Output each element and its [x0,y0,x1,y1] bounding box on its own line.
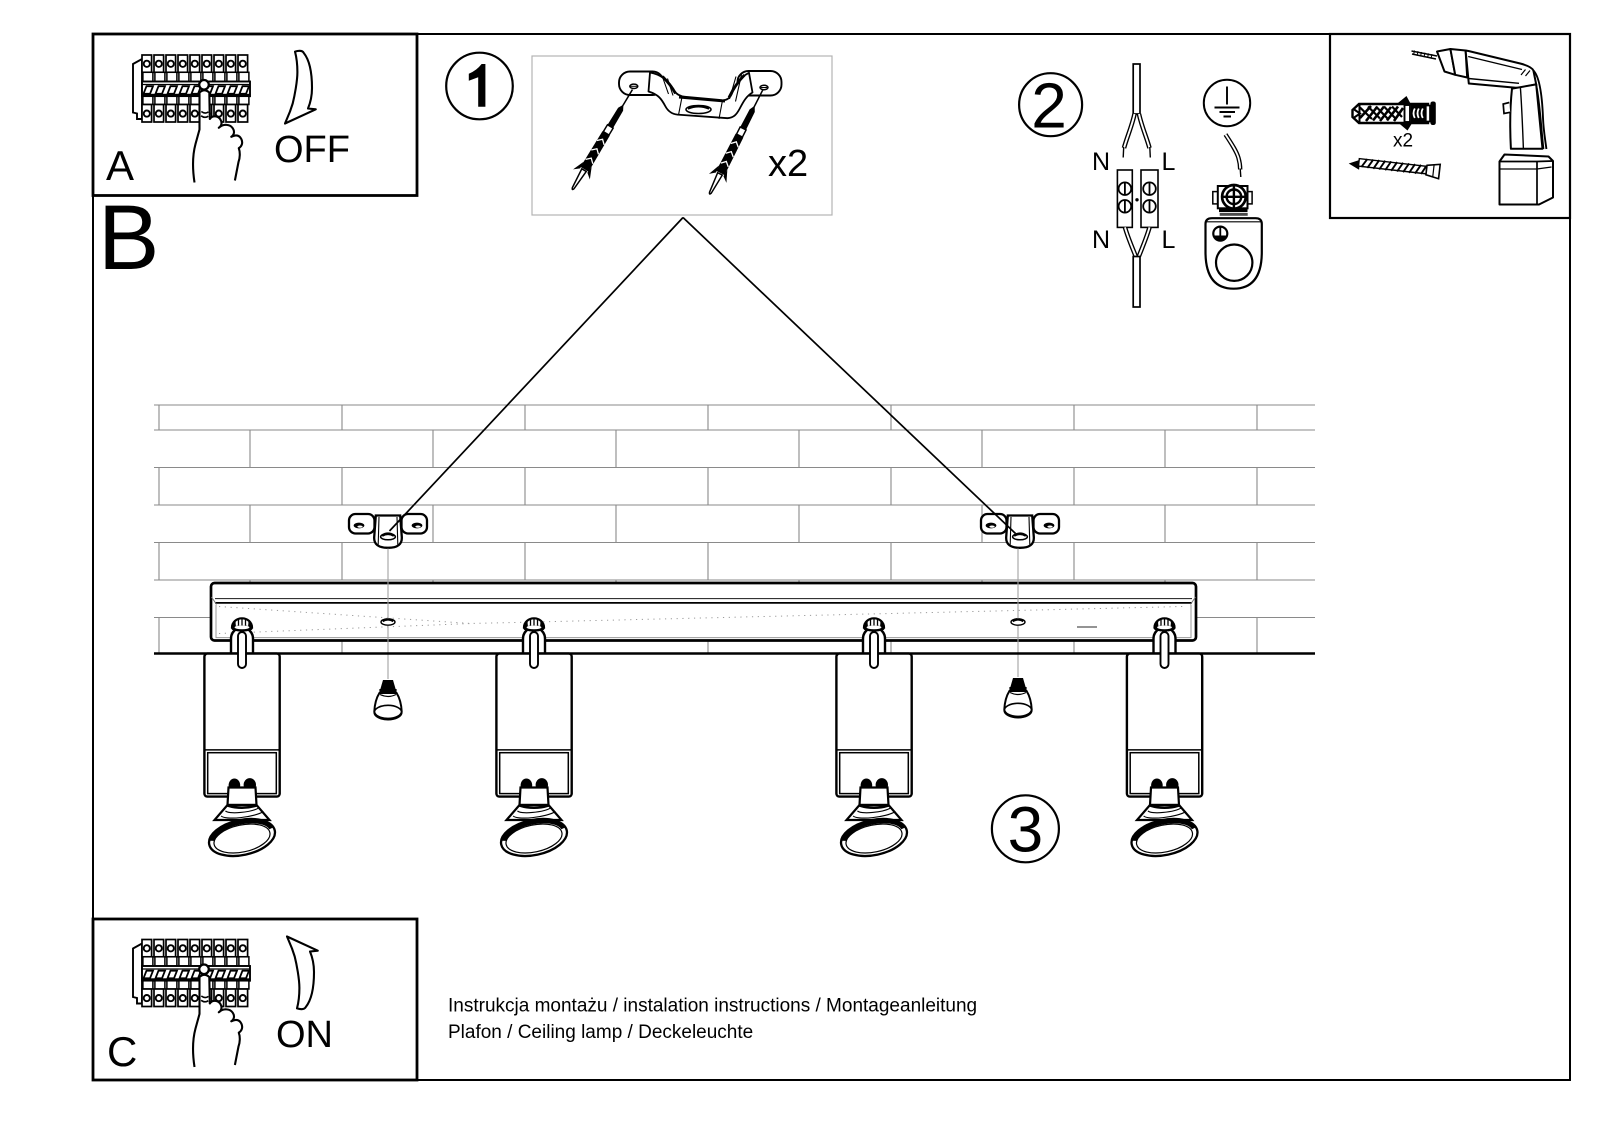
svg-text:L: L [1162,148,1176,176]
svg-text:N: N [1092,148,1110,176]
svg-text:N: N [1092,226,1110,254]
svg-text:B: B [98,187,159,289]
svg-text:x2: x2 [1393,131,1413,152]
svg-text:Plafon / Ceiling lamp / Deckel: Plafon / Ceiling lamp / Deckeleuchte [448,1022,753,1043]
svg-text:Instrukcja montażu / instalati: Instrukcja montażu / instalation instruc… [448,996,977,1017]
svg-text:L: L [1162,226,1176,254]
svg-text:C: C [107,1028,137,1075]
svg-text:3: 3 [1008,794,1044,866]
svg-text:x2: x2 [768,143,808,185]
svg-text:ON: ON [276,1014,333,1056]
svg-text:OFF: OFF [274,129,350,171]
svg-text:A: A [106,142,134,189]
svg-text:2: 2 [1031,70,1067,142]
